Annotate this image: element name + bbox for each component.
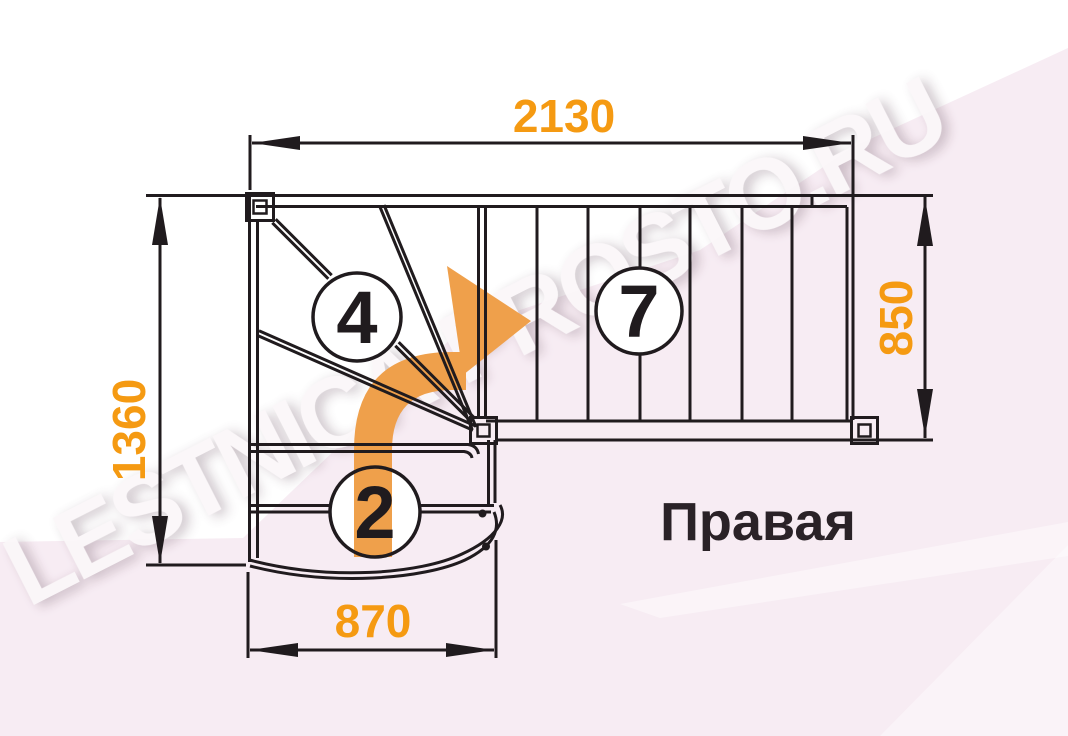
- baluster-dot-1: [479, 510, 487, 518]
- baluster-dot-2: [482, 543, 490, 551]
- lower-step-count: 2: [335, 472, 415, 552]
- dimension-label-bottom: 870: [273, 597, 473, 645]
- orientation-title: Правая: [608, 492, 908, 552]
- dimension-label-left: 1360: [103, 350, 155, 510]
- winder-step-count: 4: [317, 277, 397, 357]
- dimension-label-right: 850: [870, 238, 922, 398]
- flight-step-count: 7: [599, 271, 679, 351]
- dimension-label-top: 2130: [464, 92, 664, 140]
- stair-plan-page: LESTNICA-PROSTO.RU: [0, 0, 1068, 736]
